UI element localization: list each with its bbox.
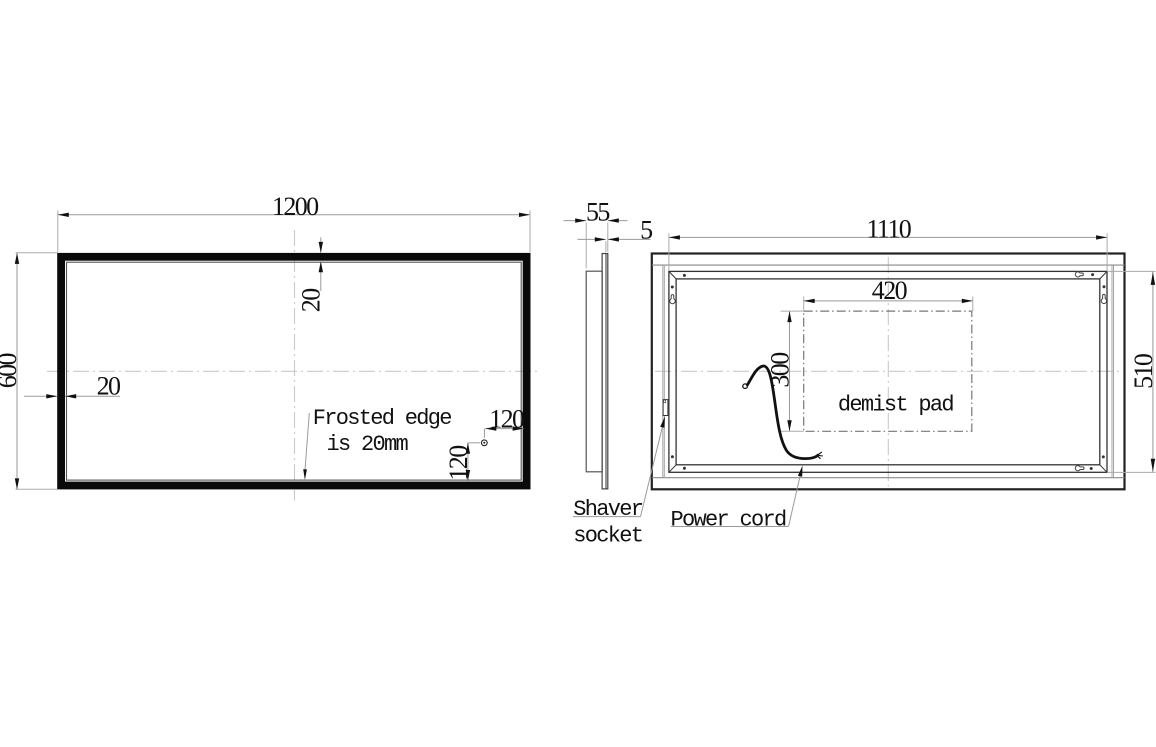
svg-text:Power cord: Power cord — [671, 507, 787, 532]
svg-text:5: 5 — [640, 216, 652, 245]
svg-text:socket: socket — [573, 523, 642, 548]
svg-text:1110: 1110 — [866, 214, 911, 243]
svg-text:20: 20 — [97, 372, 121, 401]
svg-text:20: 20 — [297, 288, 326, 312]
svg-text:120: 120 — [489, 405, 525, 434]
svg-text:1200: 1200 — [272, 192, 319, 221]
svg-text:510: 510 — [1129, 353, 1156, 389]
svg-text:55: 55 — [586, 198, 609, 227]
svg-text:Shaver: Shaver — [573, 497, 643, 522]
svg-text:600: 600 — [0, 353, 22, 389]
svg-text:Frosted edge: Frosted edge — [313, 406, 452, 431]
svg-text:120: 120 — [444, 445, 473, 481]
svg-text:300: 300 — [766, 352, 795, 388]
svg-text:420: 420 — [872, 276, 908, 305]
svg-text:demist pad: demist pad — [838, 393, 954, 418]
svg-text:is 20mm: is 20mm — [327, 432, 409, 457]
